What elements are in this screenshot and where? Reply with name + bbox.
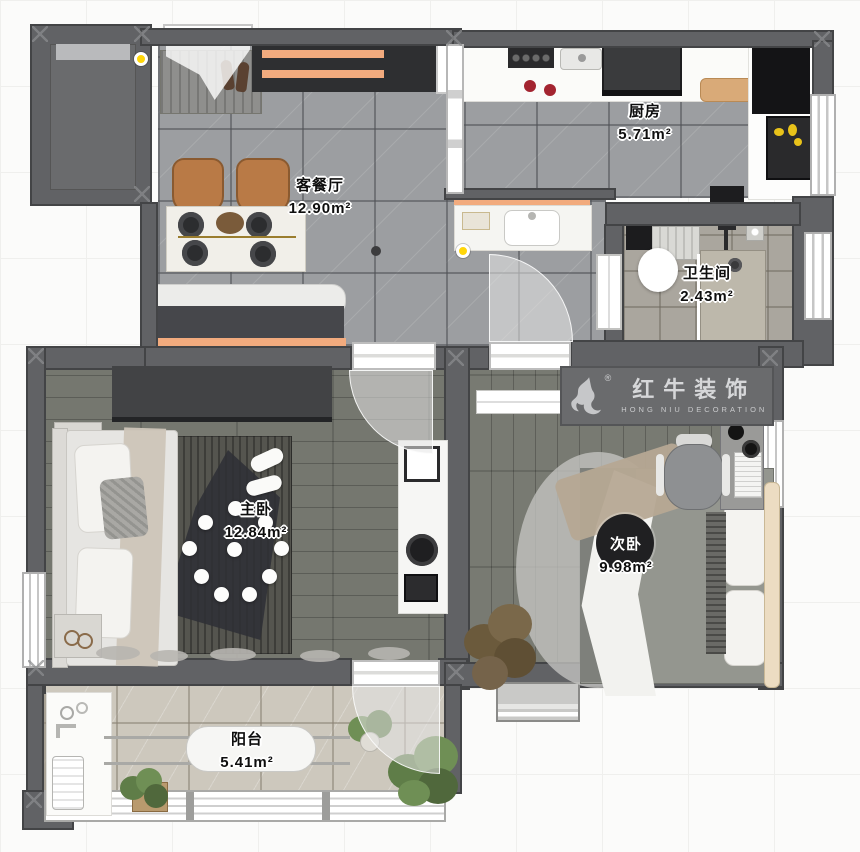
accent-pillow	[99, 476, 149, 540]
room-area: 2.43m²	[680, 289, 734, 304]
bath-fixture	[746, 224, 764, 241]
light-point	[134, 52, 148, 66]
corner-mark	[28, 660, 44, 676]
potted-plant	[464, 604, 538, 692]
office-chair	[664, 444, 724, 510]
corner-mark	[448, 350, 464, 366]
room-area: 9.98m²	[599, 560, 653, 575]
kitchen-window	[810, 94, 836, 196]
bull-logo-icon	[567, 375, 601, 417]
wall-kitchen-bottom	[444, 188, 616, 200]
sofa-seat	[148, 306, 344, 340]
bathroom-door-leaf	[596, 254, 622, 330]
place-setting	[182, 240, 208, 266]
laptop	[734, 452, 762, 498]
room-label-bath: 卫生间 2.43m²	[680, 266, 734, 304]
kitchen-floor	[464, 96, 762, 198]
laundry-faucet	[60, 706, 74, 720]
room-name: 厨房	[618, 104, 672, 119]
tv-cabinet-shelf-strip	[262, 70, 384, 78]
pillow	[724, 502, 766, 586]
laundry-pipe	[56, 724, 60, 738]
room-area: 5.71m²	[618, 127, 672, 142]
stairwell-inner	[50, 44, 136, 190]
sink-faucet	[578, 54, 586, 62]
foot-bench-item	[368, 647, 410, 660]
wall-top-kitchen	[452, 30, 834, 48]
shower-pipe	[724, 228, 728, 250]
corner-mark	[28, 348, 44, 364]
room-area: 5.41m²	[220, 755, 274, 770]
toilet-tank-box	[626, 226, 652, 250]
toilet-bowl	[638, 248, 678, 292]
decor-glasses	[77, 633, 93, 649]
desk-speaker	[728, 424, 744, 440]
brand-subtitle: HONG NIU DECORATION	[621, 405, 767, 414]
fridge-food	[794, 138, 802, 146]
wall-bath-top	[605, 202, 801, 226]
light-point	[456, 244, 470, 258]
kitchen-partition-window	[446, 44, 464, 194]
master-door-sill	[352, 342, 436, 370]
brand-watermark-band: ® 红牛装饰 HONG NIU DECORATION	[560, 366, 774, 426]
red-pot	[544, 84, 556, 96]
registered-mark: ®	[605, 373, 612, 383]
room-name: 次卧	[599, 537, 653, 552]
chair-armrest	[722, 454, 730, 496]
wall-top-living	[140, 28, 462, 46]
tv-cabinet-shelf-strip	[262, 50, 384, 58]
second-door-sill	[489, 342, 571, 370]
window-mullion	[186, 792, 194, 820]
stove	[508, 48, 554, 68]
fridge-food	[774, 128, 784, 136]
room-label-balcony: 阳台 5.41m²	[220, 732, 274, 770]
place-setting	[178, 212, 204, 238]
floor-drain-dot	[371, 246, 381, 256]
room-name: 卫生间	[680, 266, 734, 281]
master-window	[22, 572, 46, 668]
oven-unit	[602, 46, 682, 94]
wall-balcony-left	[26, 684, 44, 798]
foot-bench-item	[210, 648, 256, 661]
room-name: 客餐厅	[289, 178, 352, 193]
room-label-second: 次卧 9.98m²	[599, 537, 653, 575]
balcony-door-sill	[352, 660, 440, 686]
chair-armrest	[656, 454, 664, 496]
stairwell-ledge	[56, 44, 130, 60]
room-area: 12.90m²	[289, 201, 352, 216]
vanity-faucet	[528, 212, 536, 220]
place-setting	[250, 241, 276, 267]
chopstick-rail	[178, 236, 296, 238]
accent-pillow	[706, 512, 726, 654]
washing-machine	[52, 756, 84, 810]
place-setting	[246, 212, 272, 238]
corner-mark	[762, 350, 778, 366]
corner-mark	[134, 26, 150, 42]
desk-mic	[742, 440, 760, 458]
brand-name: 红牛装饰	[632, 379, 756, 401]
window-mullion	[322, 792, 330, 820]
floor-plan: ® 红牛装饰 HONG NIU DECORATION	[0, 0, 860, 852]
room-label-kitchen: 厨房 5.71m²	[618, 104, 672, 142]
second-headboard	[764, 482, 780, 688]
bathroom-window	[804, 232, 832, 320]
foot-bench-item	[150, 650, 188, 662]
master-wardrobe	[112, 366, 332, 422]
fridge	[752, 44, 810, 114]
laundry-faucet	[76, 702, 88, 714]
red-pot	[524, 80, 536, 92]
cutting-board	[700, 78, 754, 102]
desk-tray	[406, 534, 438, 566]
room-label-living: 客餐厅 12.90m²	[289, 178, 352, 216]
vanity-tray	[462, 212, 490, 230]
corner-mark	[32, 26, 48, 42]
corner-mark	[814, 31, 830, 47]
foot-bench-item	[96, 646, 140, 660]
foot-bench-item	[300, 650, 340, 662]
corner-mark	[26, 792, 42, 808]
table-centerpiece	[216, 212, 244, 234]
corner-mark	[446, 30, 462, 46]
corner-mark	[448, 664, 464, 680]
pillow	[724, 590, 766, 666]
potted-plant	[120, 768, 170, 814]
room-name: 阳台	[220, 732, 274, 747]
corner-mark	[134, 186, 150, 202]
room-area: 12.84m²	[225, 525, 288, 540]
fridge-food	[788, 124, 797, 136]
room-name: 主卧	[225, 502, 288, 517]
second-bedroom-shelf	[476, 390, 564, 414]
desk-box	[404, 574, 438, 602]
wall-living-left	[140, 202, 158, 348]
oven-handle	[602, 90, 682, 96]
room-label-master: 主卧 12.84m²	[225, 502, 288, 540]
